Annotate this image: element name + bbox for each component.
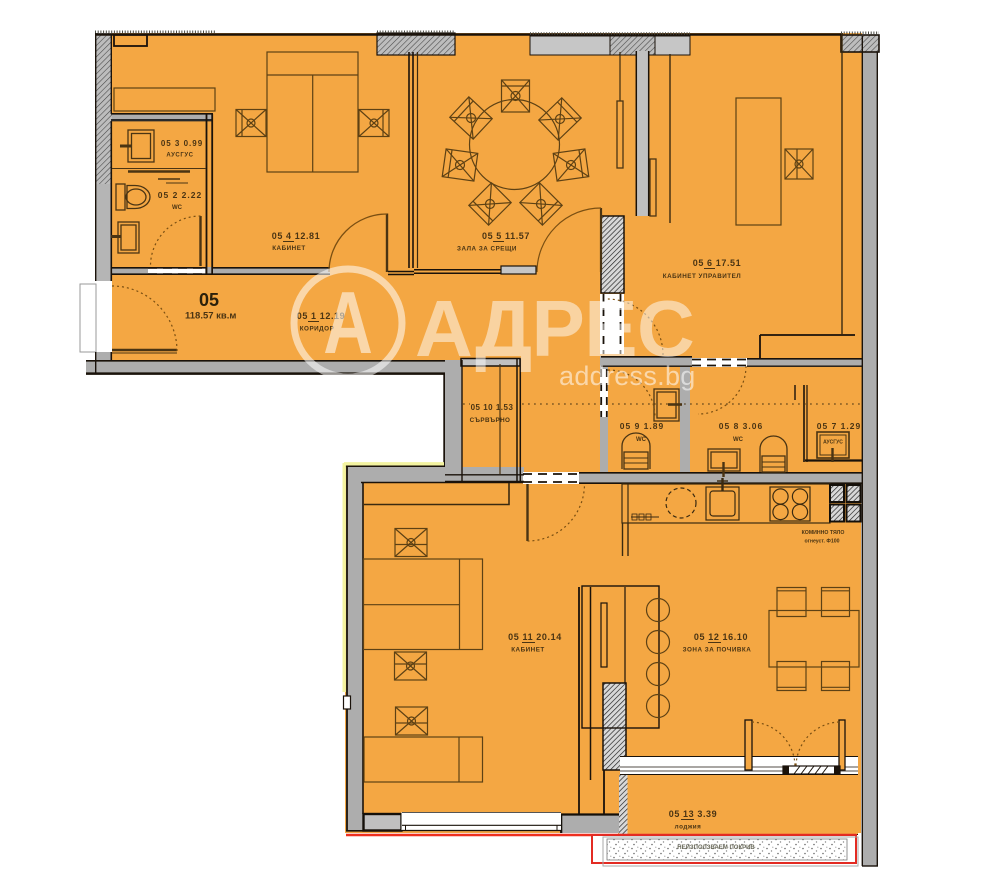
svg-text:лоджия: лоджия: [675, 824, 702, 831]
svg-text:05 11 20.14: 05 11 20.14: [508, 632, 562, 642]
svg-text:СЪРВЪРНО: СЪРВЪРНО: [470, 417, 511, 424]
svg-text:А: А: [323, 274, 373, 372]
svg-text:05 8 3.06: 05 8 3.06: [719, 421, 763, 431]
svg-text:05 9 1.89: 05 9 1.89: [620, 421, 664, 431]
svg-text:05 12 16.10: 05 12 16.10: [694, 632, 748, 642]
svg-text:ЗАЛА ЗА СРЕЩИ: ЗАЛА ЗА СРЕЩИ: [457, 246, 517, 253]
svg-text:05 3 0.99: 05 3 0.99: [161, 139, 203, 148]
svg-text:КАБИНЕТ УПРАВИТЕЛ: КАБИНЕТ УПРАВИТЕЛ: [663, 273, 741, 280]
svg-text:WC: WC: [636, 437, 647, 443]
svg-text:АУСГУС: АУСГУС: [823, 440, 843, 446]
svg-text:КАБИНЕТ: КАБИНЕТ: [511, 647, 545, 654]
svg-text:05 4 12.81: 05 4 12.81: [272, 231, 321, 241]
svg-text:АУСГУС: АУСГУС: [166, 153, 193, 159]
svg-text:КАБИНЕТ: КАБИНЕТ: [272, 245, 306, 252]
svg-text:05 10 1.53: 05 10 1.53: [471, 403, 514, 412]
svg-text:огнеуст. Ф100: огнеуст. Ф100: [805, 539, 840, 545]
svg-text:WC: WC: [172, 205, 183, 211]
svg-text:118.57 кв.м: 118.57 кв.м: [185, 311, 236, 322]
svg-text:НЕИЗПОЛЗВАЕМ ПОКРИВ: НЕИЗПОЛЗВАЕМ ПОКРИВ: [677, 845, 755, 851]
svg-text:05 5 11.57: 05 5 11.57: [482, 231, 530, 241]
svg-text:05 7 1.29: 05 7 1.29: [817, 421, 861, 431]
svg-text:05 6 17.51: 05 6 17.51: [693, 258, 742, 268]
svg-text:address.bg: address.bg: [559, 361, 696, 391]
svg-text:05 2 2.22: 05 2 2.22: [158, 190, 202, 200]
svg-text:АДРЕС: АДРЕС: [415, 284, 694, 373]
svg-text:05: 05: [199, 290, 219, 310]
svg-text:КОМИННО ТЯЛО: КОМИННО ТЯЛО: [802, 530, 845, 536]
svg-text:ЗОНА ЗА ПОЧИВКА: ЗОНА ЗА ПОЧИВКА: [683, 647, 752, 654]
svg-text:05 13 3.39: 05 13 3.39: [669, 809, 718, 819]
svg-text:WC: WC: [733, 437, 744, 443]
